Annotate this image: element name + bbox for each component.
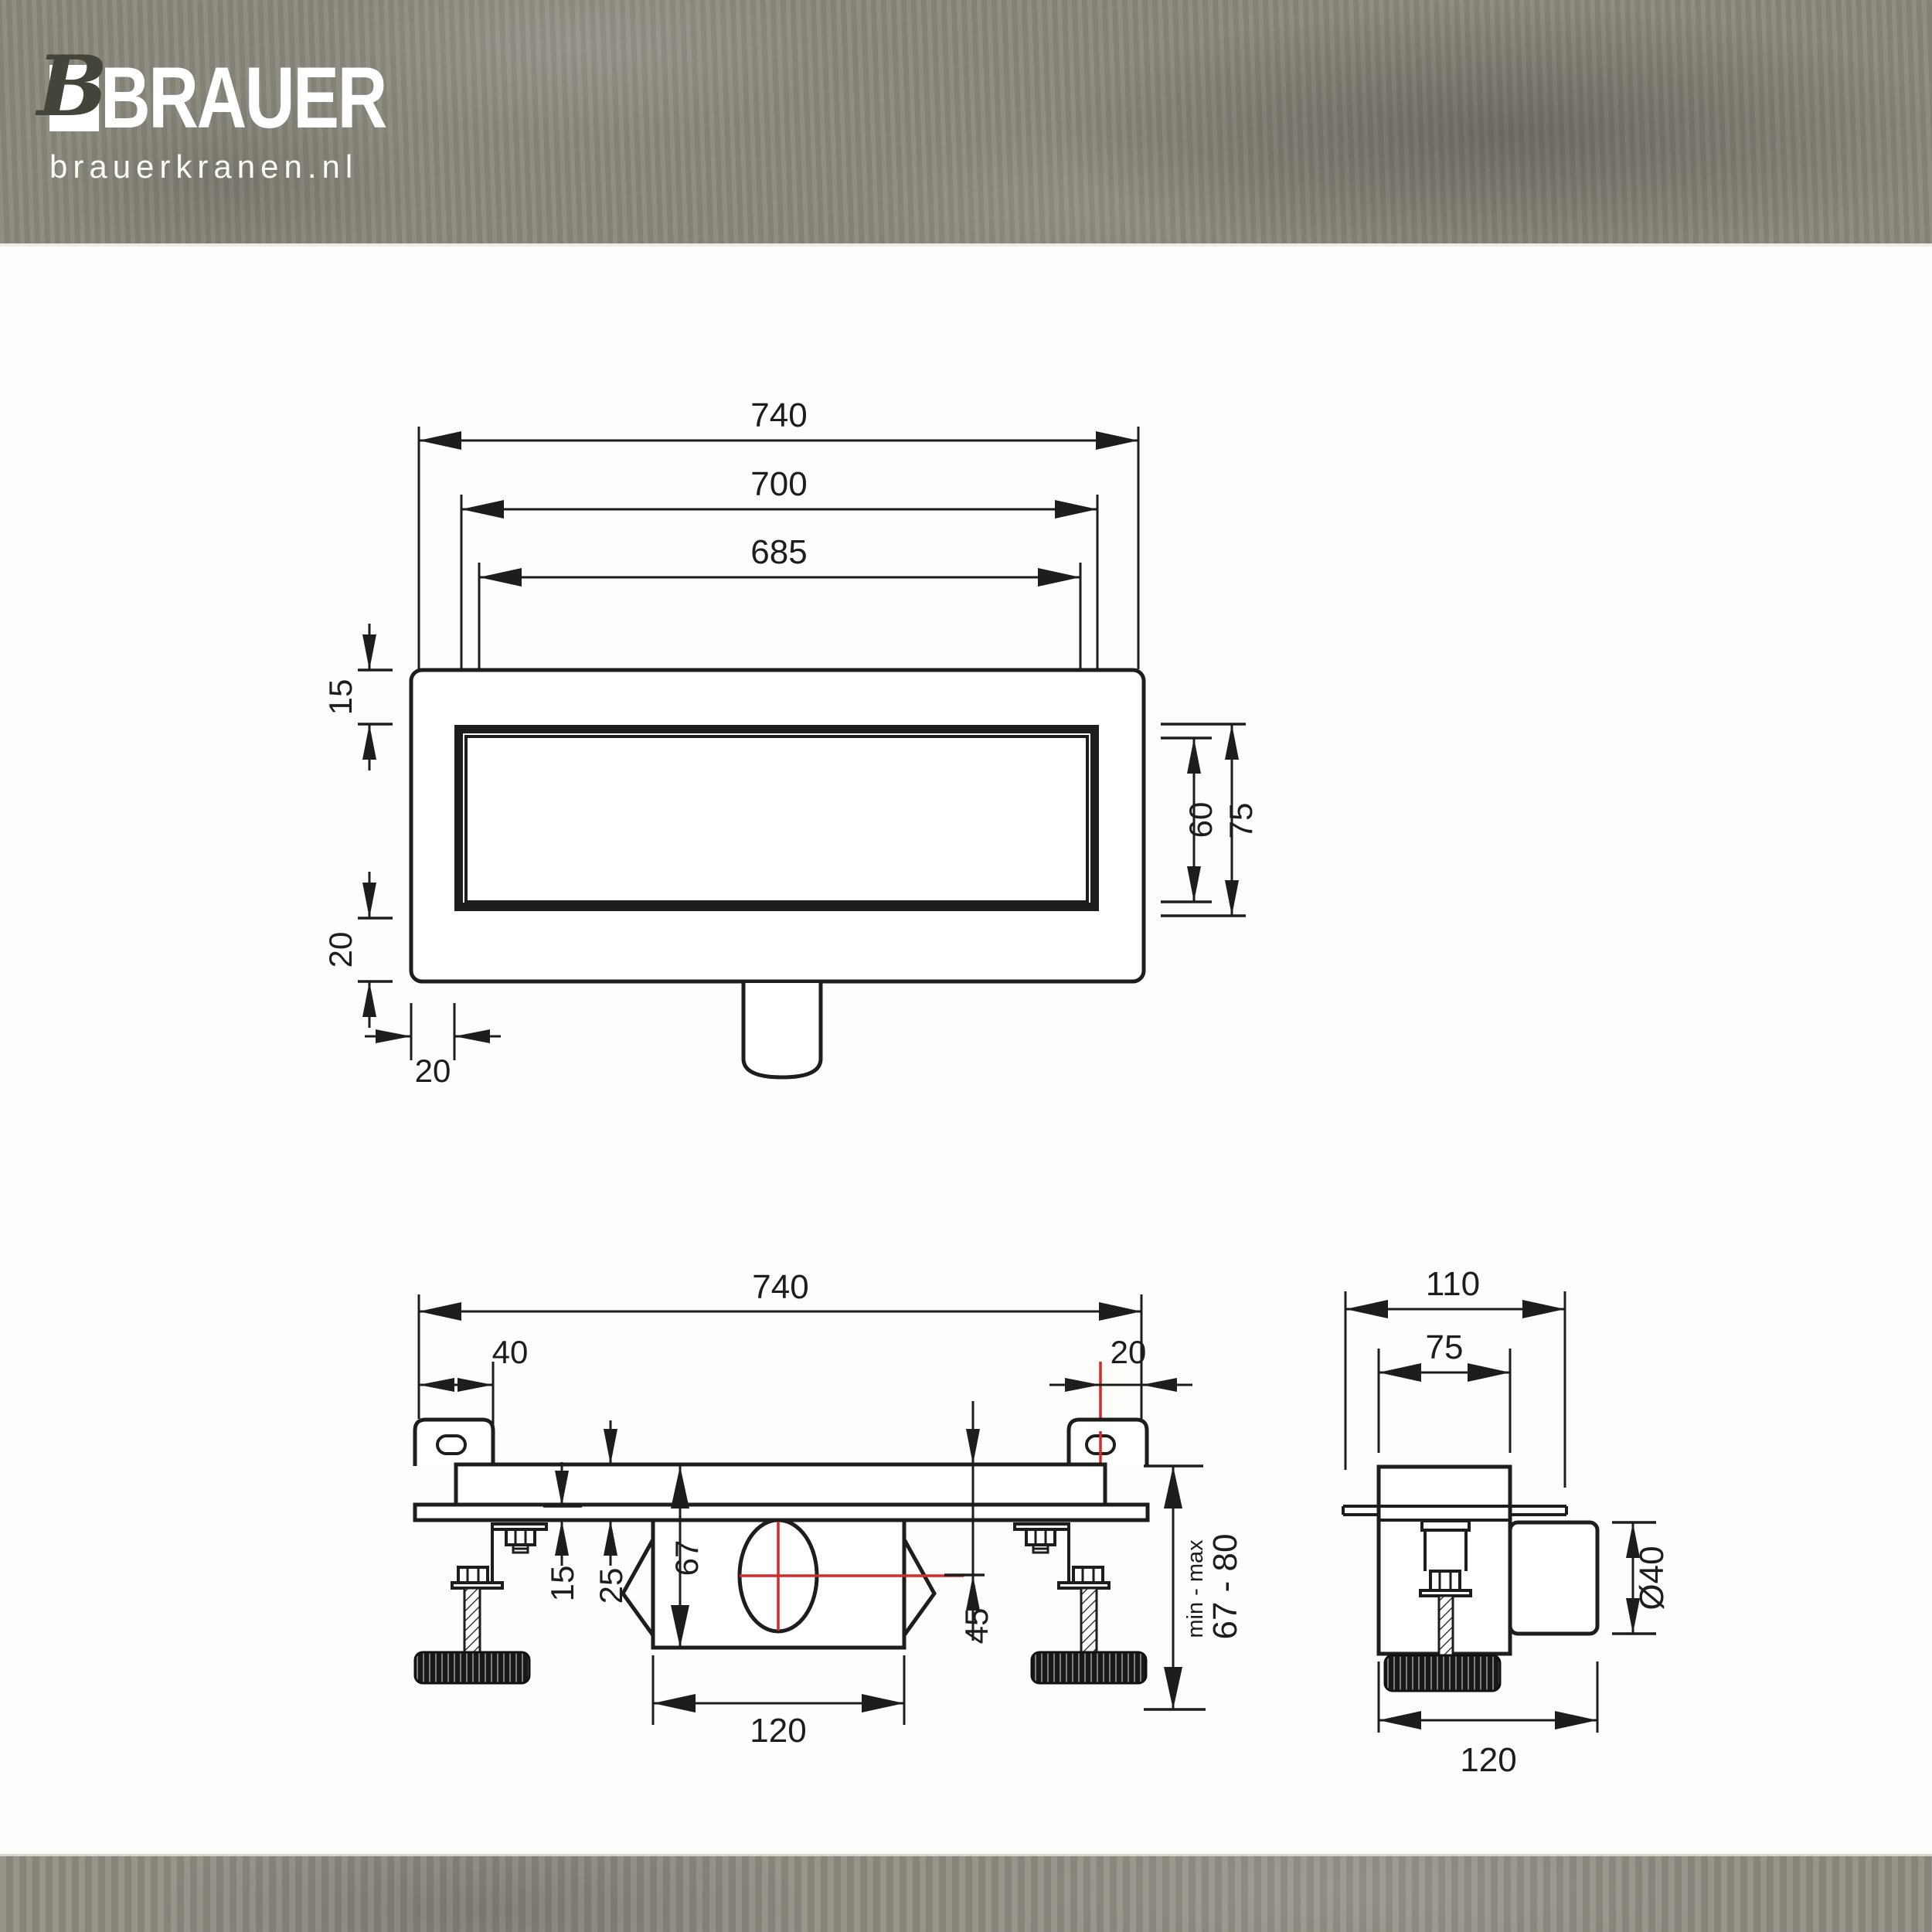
plan-dim-75-label: 75 xyxy=(1223,803,1259,839)
front-dim-overall-width: 740 xyxy=(419,1268,1141,1321)
front-dim-40-label: 40 xyxy=(492,1334,529,1370)
front-right-foot-assembly xyxy=(1015,1524,1146,1683)
front-view-drawing: 740 40 20 xyxy=(415,1268,1244,1750)
plan-dim-grate-height: 60 75 xyxy=(1161,724,1259,916)
technical-drawing: 740 700 685 xyxy=(0,0,1932,1932)
front-dim-minmax-value: 67 - 80 xyxy=(1206,1534,1244,1640)
plan-dim-60-label: 60 xyxy=(1182,802,1219,838)
page: B BRAUER brauerkranen.nl xyxy=(0,0,1932,1932)
front-dim-adjust-range: min - max 67 - 80 xyxy=(1144,1466,1244,1709)
front-dim-bracket-edge: 20 xyxy=(1049,1334,1192,1392)
front-dim-bracket-offset: 40 xyxy=(419,1334,528,1392)
front-flange xyxy=(415,1505,1148,1520)
front-dim-trap-width: 120 xyxy=(653,1655,904,1750)
front-dim-45-label: 45 xyxy=(958,1608,995,1645)
front-dim-25-label: 25 xyxy=(593,1568,629,1604)
front-left-foot-assembly xyxy=(415,1524,546,1683)
side-view-drawing: 110 75 xyxy=(1343,1265,1671,1779)
front-dim-67-label: 67 xyxy=(668,1540,705,1577)
plan-dim-left-edge: 20 xyxy=(365,1003,501,1089)
plan-view-drawing: 740 700 685 xyxy=(322,396,1259,1089)
footer-band xyxy=(0,1854,1932,1932)
front-dim-740-label: 740 xyxy=(752,1268,808,1306)
front-trap-bevel-right xyxy=(904,1539,934,1635)
side-dim-channel-width: 75 xyxy=(1379,1328,1510,1382)
side-dim-75-label: 75 xyxy=(1426,1328,1464,1366)
plan-dim-overall-width: 740 xyxy=(419,396,1138,450)
side-dim-110-label: 110 xyxy=(1426,1265,1480,1303)
side-outlet-pipe xyxy=(1510,1522,1597,1634)
front-dim-15-label: 15 xyxy=(544,1566,580,1602)
plan-dim-20-left-label: 20 xyxy=(322,932,359,968)
front-dim-120-label: 120 xyxy=(750,1712,806,1750)
plan-dim-15-label: 15 xyxy=(322,679,359,716)
front-channel-body xyxy=(456,1464,1105,1505)
plan-dim-700-label: 700 xyxy=(750,465,807,503)
front-left-bracket xyxy=(415,1420,493,1466)
plan-dim-bottom-edge: 20 xyxy=(322,872,393,1028)
front-dim-minmax-label: min - max xyxy=(1183,1539,1208,1638)
side-dim-outlet-diameter: Ø40 xyxy=(1612,1522,1671,1634)
plan-dim-top-edge: 15 xyxy=(322,624,393,770)
plan-dim-cutout-width: 700 xyxy=(461,465,1097,519)
plan-dim-740-label: 740 xyxy=(750,396,807,434)
side-dim-diameter-label: Ø40 xyxy=(1633,1546,1671,1610)
plan-dim-grate-width: 685 xyxy=(479,533,1080,587)
front-dim-outlet-center: 45 xyxy=(944,1401,995,1644)
side-dim-120-label: 120 xyxy=(1460,1741,1516,1779)
side-dim-overall-depth: 110 xyxy=(1345,1265,1565,1318)
plan-flange-outline xyxy=(411,670,1144,981)
plan-dim-20-bottom-label: 20 xyxy=(415,1053,451,1089)
plan-outlet-pipe xyxy=(743,983,821,1077)
front-right-bracket xyxy=(1069,1420,1147,1466)
front-dim-20-label: 20 xyxy=(1111,1334,1147,1370)
plan-dim-685-label: 685 xyxy=(750,533,807,571)
